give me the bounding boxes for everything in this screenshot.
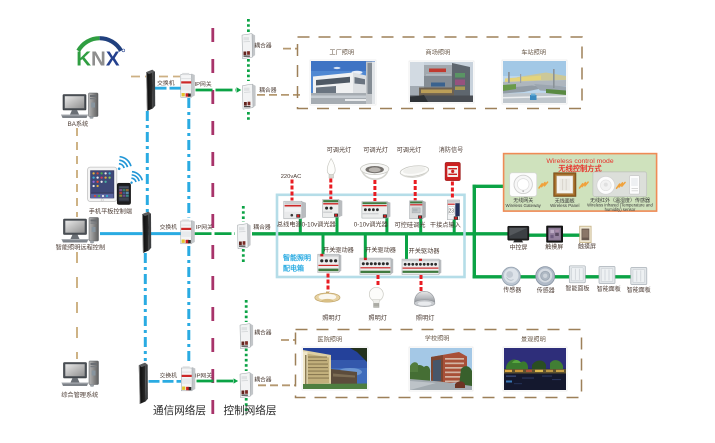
svg-text:IP网关: IP网关 bbox=[196, 223, 213, 231]
svg-text:可调光灯: 可调光灯 bbox=[363, 146, 388, 154]
svg-text:KNX: KNX bbox=[76, 47, 120, 70]
svg-text:配电箱: 配电箱 bbox=[283, 264, 304, 273]
svg-text:中控屏: 中控屏 bbox=[509, 244, 527, 252]
svg-text:耦合器: 耦合器 bbox=[254, 42, 272, 50]
svg-text:消防信号: 消防信号 bbox=[439, 146, 464, 154]
svg-text:开关驱动器: 开关驱动器 bbox=[323, 246, 355, 254]
svg-text:耦合器: 耦合器 bbox=[254, 329, 272, 337]
svg-text:照明灯: 照明灯 bbox=[416, 314, 435, 322]
svg-text:可调光灯: 可调光灯 bbox=[397, 146, 422, 154]
svg-text:耦合器: 耦合器 bbox=[254, 376, 272, 384]
svg-text:开关驱动器: 开关驱动器 bbox=[365, 246, 397, 254]
svg-text:景观照明: 景观照明 bbox=[521, 337, 546, 344]
svg-text:IP网关: IP网关 bbox=[195, 80, 212, 88]
svg-text:智能照明远程控制: 智能照明远程控制 bbox=[56, 244, 106, 252]
svg-text:触摸屏: 触摸屏 bbox=[578, 243, 596, 251]
svg-text:学校照明: 学校照明 bbox=[425, 335, 450, 343]
svg-text:智能面板: 智能面板 bbox=[627, 286, 651, 294]
svg-text:交换机: 交换机 bbox=[157, 79, 175, 87]
svg-text:可控硅调光: 可控硅调光 bbox=[395, 221, 426, 229]
svg-text:工厂照明: 工厂照明 bbox=[329, 50, 354, 57]
svg-text:照明灯: 照明灯 bbox=[322, 314, 341, 322]
svg-text:交换机: 交换机 bbox=[160, 223, 178, 231]
svg-text:开关驱动器: 开关驱动器 bbox=[409, 247, 441, 255]
svg-text:0-10v调光器: 0-10v调光器 bbox=[354, 221, 389, 229]
svg-text:传感器: 传感器 bbox=[503, 286, 521, 294]
svg-text:手机平板控制端: 手机平板控制端 bbox=[89, 208, 132, 216]
svg-text:照明灯: 照明灯 bbox=[368, 314, 387, 322]
svg-text:0-10v调光器: 0-10v调光器 bbox=[302, 221, 337, 229]
svg-text:医院照明: 医院照明 bbox=[317, 336, 342, 344]
svg-text:控制网络层: 控制网络层 bbox=[224, 404, 277, 417]
svg-text:无线控制方式: 无线控制方式 bbox=[557, 164, 602, 173]
svg-text:Wireless Gateway: Wireless Gateway bbox=[506, 203, 542, 208]
svg-text:23: 23 bbox=[449, 209, 455, 215]
svg-text:humidity) sensor: humidity) sensor bbox=[605, 207, 636, 212]
svg-text:耦合器: 耦合器 bbox=[259, 86, 277, 94]
svg-text:IP网关: IP网关 bbox=[195, 372, 212, 380]
svg-text:BA系统: BA系统 bbox=[68, 120, 89, 128]
svg-text:Wireless Panel: Wireless Panel bbox=[550, 203, 579, 208]
svg-text:智能照明: 智能照明 bbox=[283, 253, 311, 262]
svg-text:耦合器: 耦合器 bbox=[253, 223, 271, 231]
svg-text:交换机: 交换机 bbox=[160, 372, 178, 380]
svg-text:综合管理系统: 综合管理系统 bbox=[61, 391, 98, 399]
svg-text:可调光灯: 可调光灯 bbox=[327, 146, 352, 154]
svg-text:干接点输入: 干接点输入 bbox=[430, 221, 461, 229]
svg-text:智能面板: 智能面板 bbox=[597, 285, 621, 293]
svg-text:传感器: 传感器 bbox=[537, 287, 555, 295]
svg-text:触摸屏: 触摸屏 bbox=[545, 243, 563, 251]
svg-text:商场照明: 商场照明 bbox=[426, 49, 451, 57]
svg-text:220vAC: 220vAC bbox=[281, 174, 302, 180]
svg-text:车站照明: 车站照明 bbox=[521, 49, 546, 57]
svg-text:智能面板: 智能面板 bbox=[565, 285, 589, 293]
svg-text:总线电源: 总线电源 bbox=[277, 221, 302, 229]
svg-text:通信网络层: 通信网络层 bbox=[153, 404, 206, 417]
